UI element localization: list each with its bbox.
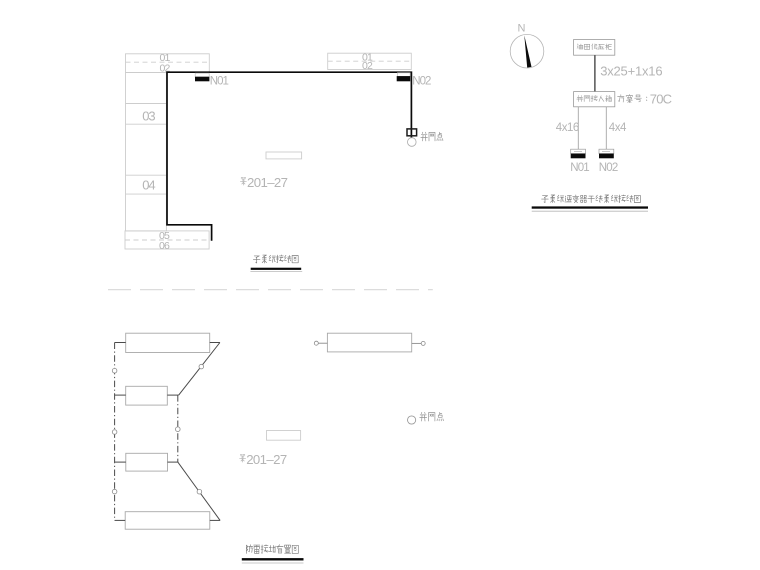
svg-text:4x16: 4x16 xyxy=(556,122,579,134)
svg-text:N02: N02 xyxy=(599,162,618,174)
svg-text:04: 04 xyxy=(142,177,155,192)
svg-text:06: 06 xyxy=(159,240,170,252)
svg-text:201–27: 201–27 xyxy=(247,175,288,190)
svg-text:03: 03 xyxy=(142,109,155,124)
svg-text:201–27: 201–27 xyxy=(246,452,287,467)
svg-text:4x4: 4x4 xyxy=(609,122,627,134)
svg-text:3x25+1x16: 3x25+1x16 xyxy=(600,63,662,78)
svg-text:02: 02 xyxy=(362,60,373,72)
svg-text:70C: 70C xyxy=(650,92,672,107)
svg-text:N: N xyxy=(518,23,526,35)
svg-text:N02: N02 xyxy=(412,76,431,88)
svg-text:N01: N01 xyxy=(210,76,229,88)
svg-text:N01: N01 xyxy=(570,162,589,174)
